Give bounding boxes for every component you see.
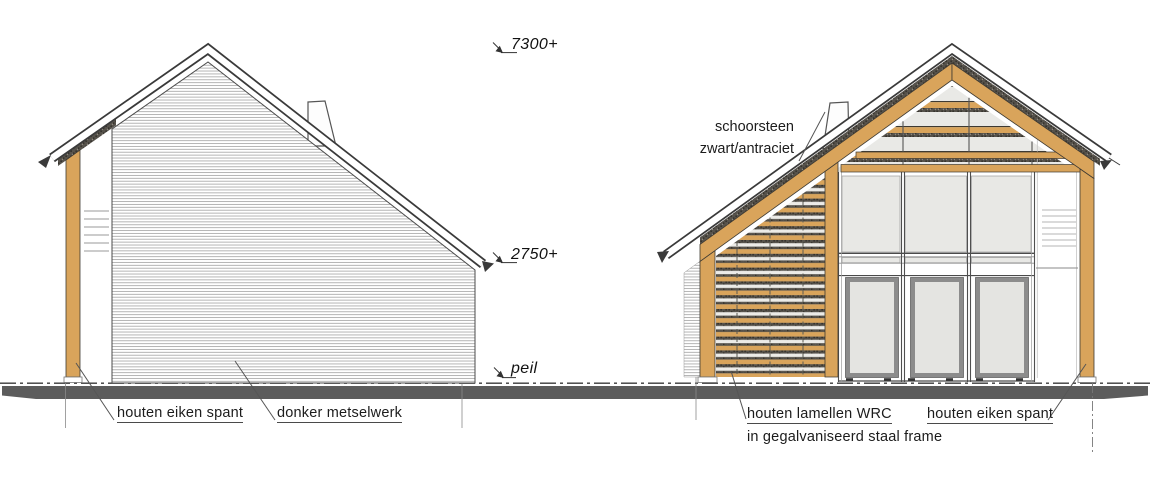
ground-shadow — [2, 386, 1148, 399]
level-ridge-label: 7300+ — [511, 36, 558, 54]
eave-arrow — [38, 155, 51, 168]
post-footing — [698, 377, 717, 383]
label-left-brickwork: donker metselwerk — [277, 405, 402, 423]
post-footing — [64, 377, 82, 383]
left-elevation-drawing — [38, 49, 494, 383]
right-hatched-strip — [684, 261, 700, 377]
oak-band-head — [841, 165, 1080, 173]
label-right-oak-frame: houten eiken spant — [927, 406, 1053, 424]
window-grid — [838, 172, 1035, 382]
drawing-geometry — [0, 0, 1152, 504]
label-wood-slats: houten lamellen WRC — [747, 406, 892, 424]
level-ground-label: peil — [511, 360, 538, 378]
left-oak-post — [66, 150, 80, 377]
level-markers — [493, 43, 517, 379]
label-left-oak-frame: houten eiken spant — [117, 405, 243, 423]
label-chimney-line1: schoorsteen — [664, 116, 794, 138]
right-oak-post-right — [1080, 169, 1094, 377]
left-louvre-strip — [84, 211, 109, 251]
post-footing — [1078, 377, 1096, 383]
right-oak-post-left — [700, 251, 715, 377]
label-steel-frame: in gegalvaniseerd staal frame — [747, 429, 942, 445]
right-elevation-drawing — [657, 49, 1120, 383]
eave-arrow — [482, 261, 494, 272]
level-eave-label: 2750+ — [511, 246, 558, 264]
eave-arrow — [657, 251, 669, 263]
elevation-drawing: 7300+ 2750+ peil houten eiken spant donk… — [0, 0, 1152, 504]
eave-arrow — [1100, 160, 1112, 170]
oak-band-upper — [856, 152, 1080, 159]
glass-doors — [846, 278, 1029, 381]
right-oak-post-middle — [825, 162, 838, 377]
right-louvre-strip — [1036, 140, 1078, 378]
label-chimney: schoorsteen zwart/antraciet — [664, 116, 794, 160]
label-chimney-line2: zwart/antraciet — [664, 138, 794, 160]
